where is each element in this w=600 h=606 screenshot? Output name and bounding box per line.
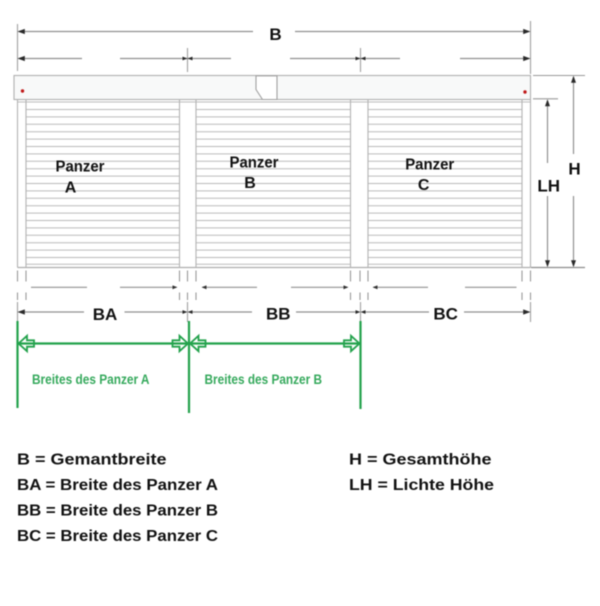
svg-text:B: B xyxy=(244,175,256,192)
svg-text:BB = Breite des Panzer B: BB = Breite des Panzer B xyxy=(17,503,218,520)
svg-text:A: A xyxy=(65,180,77,197)
svg-text:LH: LH xyxy=(537,176,560,195)
svg-text:BA: BA xyxy=(93,305,118,324)
svg-text:BB: BB xyxy=(266,305,291,324)
svg-text:BC = Breite des Panzer C: BC = Breite des Panzer C xyxy=(17,528,218,545)
svg-text:Panzer: Panzer xyxy=(405,156,454,173)
svg-text:B: B xyxy=(269,25,281,44)
svg-text:BC: BC xyxy=(433,305,458,324)
svg-text:LH = Lichte Höhe: LH = Lichte Höhe xyxy=(349,477,494,494)
svg-text:BA = Breite des Panzer A: BA = Breite des Panzer A xyxy=(17,477,218,494)
svg-text:C: C xyxy=(418,177,430,194)
svg-text:H = Gesamthöhe: H = Gesamthöhe xyxy=(349,452,492,469)
svg-text:Panzer: Panzer xyxy=(56,158,105,175)
svg-text:B = Gemantbreite: B = Gemantbreite xyxy=(17,452,167,469)
svg-text:Breites des Panzer A: Breites des Panzer A xyxy=(32,372,150,387)
svg-text:Breites des Panzer B: Breites des Panzer B xyxy=(205,372,323,387)
svg-text:Panzer: Panzer xyxy=(230,154,279,171)
svg-text:H: H xyxy=(568,160,580,179)
